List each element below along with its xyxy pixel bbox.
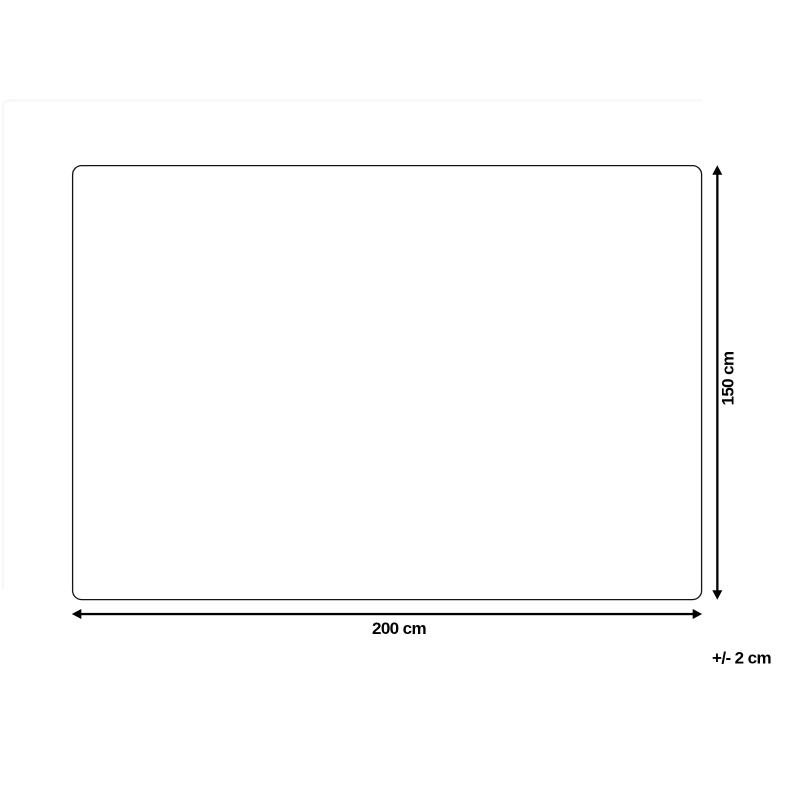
svg-text:+/- 2 cm: +/- 2 cm	[712, 649, 771, 668]
svg-text:150 cm: 150 cm	[719, 351, 738, 406]
svg-text:200 cm: 200 cm	[372, 619, 427, 638]
